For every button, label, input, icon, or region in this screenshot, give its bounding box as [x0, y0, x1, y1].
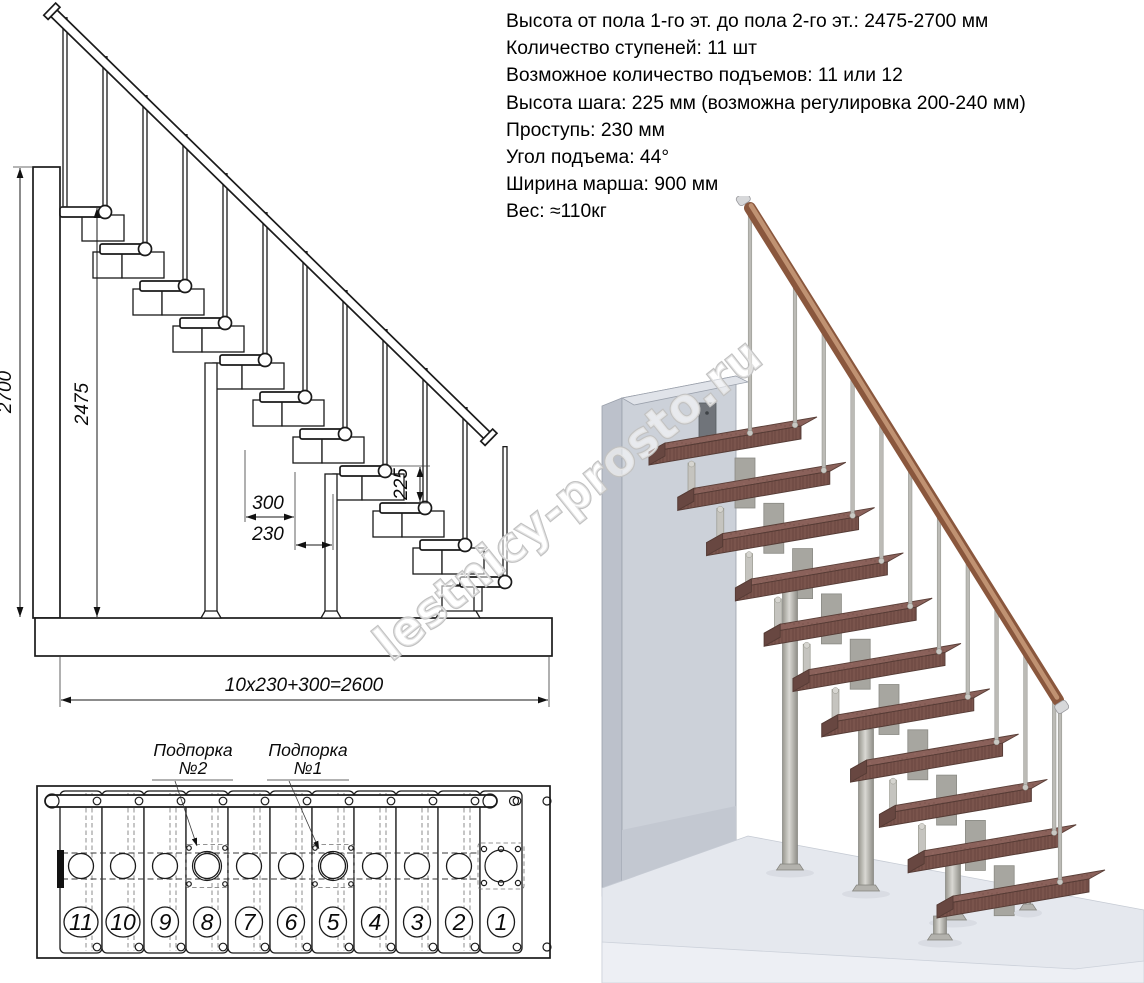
baluster: [1052, 694, 1056, 835]
plan-column: [447, 854, 472, 879]
joint-ball: [689, 461, 695, 467]
baluster: [908, 464, 912, 608]
baluster: [822, 326, 826, 472]
joint-ball: [833, 688, 839, 694]
joint-ball: [1023, 785, 1029, 791]
joint-ball: [1057, 879, 1063, 885]
joint-ball: [775, 597, 781, 603]
tread-end: [339, 428, 352, 441]
step-number: 11: [69, 909, 93, 935]
column-foot: [321, 611, 341, 618]
elevation-staircase: [33, 3, 552, 656]
step-number: 10: [110, 909, 136, 935]
baluster: [937, 510, 941, 654]
baluster: [103, 57, 107, 207]
plan-column: [279, 854, 304, 879]
plan-column: [321, 854, 346, 879]
plan-column: [153, 854, 178, 879]
tread-end: [179, 280, 192, 293]
joint-ball: [746, 552, 752, 558]
joint-ball: [850, 513, 856, 519]
support-column: [325, 474, 337, 618]
baluster: [851, 372, 855, 518]
dim-tread-depth: 300: [252, 493, 284, 514]
dim-flight-height: 2475: [72, 382, 93, 426]
tread-end: [139, 243, 152, 256]
tread-end: [379, 465, 392, 478]
plan-drawing: 1110987654321 Подпорка №2 Подпорка №1: [0, 728, 580, 983]
support-column: [859, 729, 874, 889]
step-number: 7: [243, 909, 257, 935]
step-module-box: [173, 326, 202, 352]
spec-line: Ширина марша: 900 мм: [506, 171, 1138, 198]
joint-ball: [821, 468, 827, 474]
joint-ball: [890, 778, 896, 784]
column-foot: [201, 611, 221, 618]
baluster: [383, 330, 387, 466]
tread-end: [219, 317, 232, 330]
beam-stub: [57, 850, 64, 888]
joint-ball: [717, 506, 723, 512]
baluster: [183, 135, 187, 281]
support2-label-line1: Подпорка: [153, 740, 232, 760]
step-module-box: [133, 289, 162, 315]
spec-line: Высота шага: 225 мм (возможна регулировк…: [506, 90, 1138, 117]
plan-column: [363, 854, 388, 879]
spec-line: Угол подъема: 44°: [506, 144, 1138, 171]
step-number: 5: [327, 909, 340, 935]
spec-line: Высота от пола 1-го эт. до пола 2-го эт.…: [506, 8, 1138, 35]
baluster: [143, 96, 147, 244]
step-number: 9: [159, 909, 172, 935]
spec-line: Количество ступеней: 11 шт: [506, 35, 1138, 62]
tread-end: [299, 391, 312, 404]
joint-ball: [994, 739, 1000, 745]
step-module-box: [373, 511, 402, 537]
baluster: [423, 369, 427, 503]
elevation-drawing: 2700 2475 225 300 230 10x230+300=2600: [0, 0, 580, 728]
joint-ball: [804, 642, 810, 648]
tread-end: [259, 354, 272, 367]
plan-column: [195, 854, 220, 879]
dim-total-height: 2700: [0, 370, 16, 414]
page: Высота от пола 1-го эт. до пола 2-го эт.…: [0, 0, 1144, 983]
render3d-scene: [602, 196, 1144, 983]
plan-staircase: 1110987654321: [37, 786, 551, 958]
column-foot: [777, 864, 804, 870]
baluster: [793, 280, 797, 427]
step-number: 3: [411, 909, 424, 935]
tread-end: [459, 539, 472, 552]
joint-ball: [747, 430, 753, 436]
joint-ball: [792, 422, 798, 428]
spec-line: Проступь: 230 мм: [506, 117, 1138, 144]
plan-column: [237, 854, 262, 879]
plan-column: [69, 854, 94, 879]
column-foot: [436, 611, 480, 618]
bolt-icon: [705, 411, 709, 415]
baluster: [880, 418, 884, 563]
support1-label-line1: Подпорка: [268, 740, 347, 760]
baluster: [303, 252, 307, 392]
column-foot: [853, 885, 880, 891]
tread-end: [99, 206, 112, 219]
tread-end: [499, 576, 512, 589]
floor-base: [35, 618, 552, 656]
joint-ball: [907, 603, 913, 609]
step-number: 8: [201, 909, 214, 935]
dim-run: 230: [251, 524, 284, 545]
spec-line: Возможное количество подъемов: 11 или 12: [506, 62, 1138, 89]
baluster: [966, 556, 970, 699]
baluster: [995, 602, 999, 744]
tread-end: [419, 502, 432, 515]
wall-side-face: [602, 398, 622, 896]
plan-column: [111, 854, 136, 879]
dim-total-run: 10x230+300=2600: [225, 675, 384, 696]
joint-ball: [965, 694, 971, 700]
support1-label-line2: №1: [294, 758, 323, 778]
step-module-box: [253, 400, 282, 426]
support-column: [205, 363, 217, 618]
joint-ball: [919, 823, 925, 829]
wall-post: [33, 167, 60, 618]
baluster: [63, 18, 67, 207]
step-module-box: [293, 437, 322, 463]
plan-column: [405, 854, 430, 879]
baluster: [343, 291, 347, 429]
support2-label-line2: №2: [179, 758, 208, 778]
column-foot: [928, 934, 953, 940]
step-module-box: [413, 548, 442, 574]
step-number: 4: [369, 909, 382, 935]
joint-ball: [936, 649, 942, 655]
baluster: [1024, 648, 1028, 789]
joint-ball: [879, 558, 885, 564]
step-number: 1: [495, 909, 508, 935]
baluster: [1058, 700, 1062, 884]
dim-rise: 225: [391, 468, 412, 501]
baluster: [263, 213, 267, 355]
render3d: [556, 196, 1144, 983]
baluster: [503, 447, 507, 577]
spec-list: Высота от пола 1-го эт. до пола 2-го эт.…: [506, 8, 1138, 226]
baluster: [463, 408, 467, 540]
step-number: 2: [452, 909, 466, 935]
baluster: [748, 208, 752, 435]
baluster: [223, 174, 227, 318]
step-number: 6: [285, 909, 298, 935]
joint-ball: [1051, 830, 1057, 836]
